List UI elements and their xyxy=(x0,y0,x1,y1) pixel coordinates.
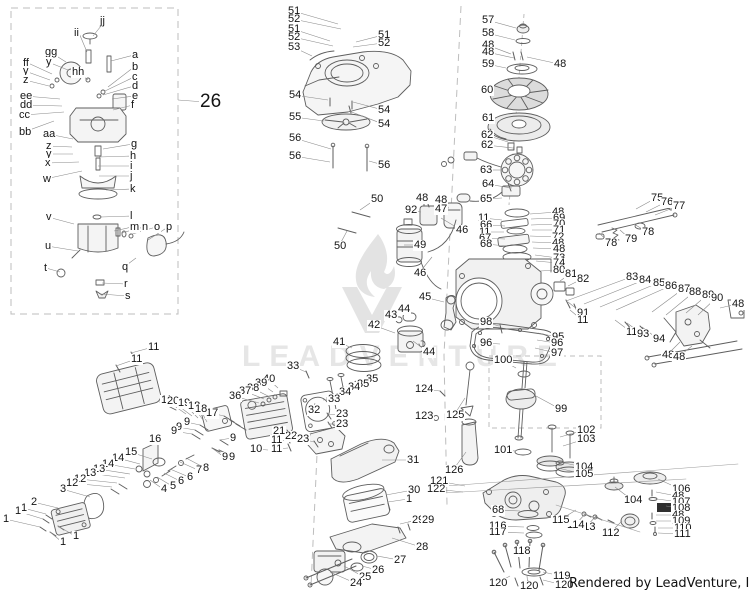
part-label-53: 53 xyxy=(287,42,301,53)
part-label-1: 1 xyxy=(405,494,413,505)
part-label-p: p xyxy=(165,222,173,233)
part-label-23: 23 xyxy=(296,434,310,445)
part-label-101: 101 xyxy=(493,445,513,456)
part-label-j: j xyxy=(129,171,133,182)
part-label-103: 103 xyxy=(576,434,596,445)
part-label-33: 33 xyxy=(327,394,341,405)
part-label-54: 54 xyxy=(377,105,391,116)
part-label-26: 26 xyxy=(199,92,222,111)
part-label-11: 11 xyxy=(130,354,143,365)
part-label-a: a xyxy=(131,50,139,61)
part-label-54: 54 xyxy=(288,90,302,101)
part-label-48: 48 xyxy=(553,59,567,70)
part-label-23: 23 xyxy=(335,419,349,430)
part-label-42: 42 xyxy=(367,320,381,331)
part-label-48: 48 xyxy=(731,299,745,310)
part-label-78: 78 xyxy=(604,238,618,249)
part-label-56: 56 xyxy=(288,133,302,144)
part-label-3: 3 xyxy=(59,484,67,495)
part-label-60: 60 xyxy=(480,85,494,96)
part-label-46: 46 xyxy=(455,225,469,236)
part-label-1: 1 xyxy=(2,514,10,525)
part-label-32: 32 xyxy=(307,405,321,416)
part-label-117: 117 xyxy=(488,527,508,538)
part-label-hh: hh xyxy=(71,67,85,78)
part-label-115: 115 xyxy=(551,515,571,526)
part-label-10: 10 xyxy=(249,444,263,455)
part-label-11: 11 xyxy=(270,444,283,455)
part-label-16: 16 xyxy=(148,434,162,445)
part-label-54: 54 xyxy=(377,119,391,130)
part-label-122: 122 xyxy=(426,484,446,495)
part-labels-layer: jjiiggyhhffyzeeddccbbaazyxwvutabcdefghij… xyxy=(0,0,750,597)
part-label-84: 84 xyxy=(638,275,652,286)
part-label-64: 64 xyxy=(481,179,495,190)
parts-diagram-page: LEADVENTURE xyxy=(0,0,750,597)
part-label-78: 78 xyxy=(641,227,655,238)
part-label-aa: aa xyxy=(42,129,56,140)
part-label-26: 26 xyxy=(371,565,385,576)
part-label-2: 2 xyxy=(30,497,38,508)
part-label-62: 62 xyxy=(480,140,494,151)
part-label-x: x xyxy=(44,158,52,169)
render-credit-text: Rendered by LeadVenture, Inc. xyxy=(569,576,750,591)
part-label-58: 58 xyxy=(481,28,495,39)
part-label-94: 94 xyxy=(652,334,666,345)
part-label-41: 41 xyxy=(332,337,346,348)
part-label-56: 56 xyxy=(377,160,391,171)
part-label-g: g xyxy=(130,139,138,150)
part-label-8: 8 xyxy=(202,463,210,474)
part-label-11: 11 xyxy=(576,315,589,326)
part-label-9: 9 xyxy=(183,417,191,428)
part-label-m: m xyxy=(129,222,140,233)
part-label-55: 55 xyxy=(288,112,302,123)
part-label-12: 12 xyxy=(65,478,79,489)
part-label-82: 82 xyxy=(576,274,590,285)
part-label-u: u xyxy=(44,241,52,252)
part-label-65: 65 xyxy=(479,194,493,205)
part-label-112: 112 xyxy=(601,528,621,539)
part-label-98: 98 xyxy=(479,317,493,328)
part-label-n: n xyxy=(141,222,149,233)
part-label-k: k xyxy=(129,184,137,195)
part-label-6: 6 xyxy=(186,472,194,483)
part-label-4: 4 xyxy=(160,484,168,495)
part-label-ii: ii xyxy=(73,28,80,39)
part-label-50: 50 xyxy=(333,241,347,252)
part-label-36: 36 xyxy=(228,391,242,402)
part-label-48: 48 xyxy=(672,352,686,363)
part-label-9: 9 xyxy=(228,452,236,463)
part-label-47: 47 xyxy=(434,204,448,215)
part-label-1: 1 xyxy=(72,531,80,542)
part-label-jj: jj xyxy=(99,16,106,27)
part-label-29: 29 xyxy=(421,515,435,526)
part-label-90: 90 xyxy=(710,293,724,304)
part-label-93: 93 xyxy=(636,329,650,340)
part-label-111: 111 xyxy=(673,529,692,540)
part-label-w: w xyxy=(42,174,52,185)
part-label-92: 92 xyxy=(404,205,418,216)
part-label-24: 24 xyxy=(349,578,363,589)
part-label-5: 5 xyxy=(169,481,177,492)
part-label-120: 120 xyxy=(519,581,539,592)
part-label-68: 68 xyxy=(479,239,493,250)
part-label-9: 9 xyxy=(229,433,237,444)
part-label-15: 15 xyxy=(124,447,138,458)
part-label-v: v xyxy=(45,212,53,223)
part-label-o: o xyxy=(153,222,161,233)
part-label-48: 48 xyxy=(481,47,495,58)
part-label-104: 104 xyxy=(623,495,643,506)
part-label-43: 43 xyxy=(384,310,398,321)
part-label-125: 125 xyxy=(445,410,465,421)
part-label-y: y xyxy=(45,57,53,68)
part-label-50: 50 xyxy=(370,194,384,205)
part-label-11: 11 xyxy=(147,342,160,353)
part-label-q: q xyxy=(121,262,129,273)
part-label-56: 56 xyxy=(288,151,302,162)
part-label-120: 120 xyxy=(488,578,508,589)
part-label-44: 44 xyxy=(422,347,436,358)
part-label-27: 27 xyxy=(393,555,407,566)
part-label-105: 105 xyxy=(574,469,594,480)
part-label-68: 68 xyxy=(491,505,505,516)
part-label-96: 96 xyxy=(479,338,493,349)
part-label-f: f xyxy=(130,100,135,111)
part-label-18: 18 xyxy=(194,404,208,415)
part-label-99: 99 xyxy=(554,404,568,415)
part-label-123: 123 xyxy=(414,411,434,422)
part-label-100: 100 xyxy=(493,355,513,366)
part-label-33: 33 xyxy=(286,361,300,372)
part-label-57: 57 xyxy=(481,15,495,26)
part-label-r: r xyxy=(123,279,129,290)
part-label-97: 97 xyxy=(550,348,564,359)
part-label-49: 49 xyxy=(413,240,427,251)
part-label-1: 1 xyxy=(14,506,22,517)
part-label-9: 9 xyxy=(170,426,178,437)
part-label-bb: bb xyxy=(18,127,32,138)
part-label-118: 118 xyxy=(512,546,532,557)
part-label-79: 79 xyxy=(624,234,638,245)
part-label-6: 6 xyxy=(177,476,185,487)
part-label-59: 59 xyxy=(481,59,495,70)
part-label-45: 45 xyxy=(418,292,432,303)
part-label-28: 28 xyxy=(415,542,429,553)
part-label-44: 44 xyxy=(397,304,411,315)
part-label-48: 48 xyxy=(415,193,429,204)
part-label-124: 124 xyxy=(414,384,434,395)
part-label-t: t xyxy=(43,263,48,274)
part-label-1: 1 xyxy=(59,537,67,548)
part-label-s: s xyxy=(124,291,132,302)
part-label-cc: cc xyxy=(18,110,31,121)
part-label-77: 77 xyxy=(672,201,686,212)
part-label-63: 63 xyxy=(479,165,493,176)
part-label-61: 61 xyxy=(481,113,495,124)
part-label-z: z xyxy=(22,75,30,86)
part-label-46: 46 xyxy=(413,268,427,279)
part-label-31: 31 xyxy=(406,455,420,466)
part-label-52: 52 xyxy=(377,38,391,49)
